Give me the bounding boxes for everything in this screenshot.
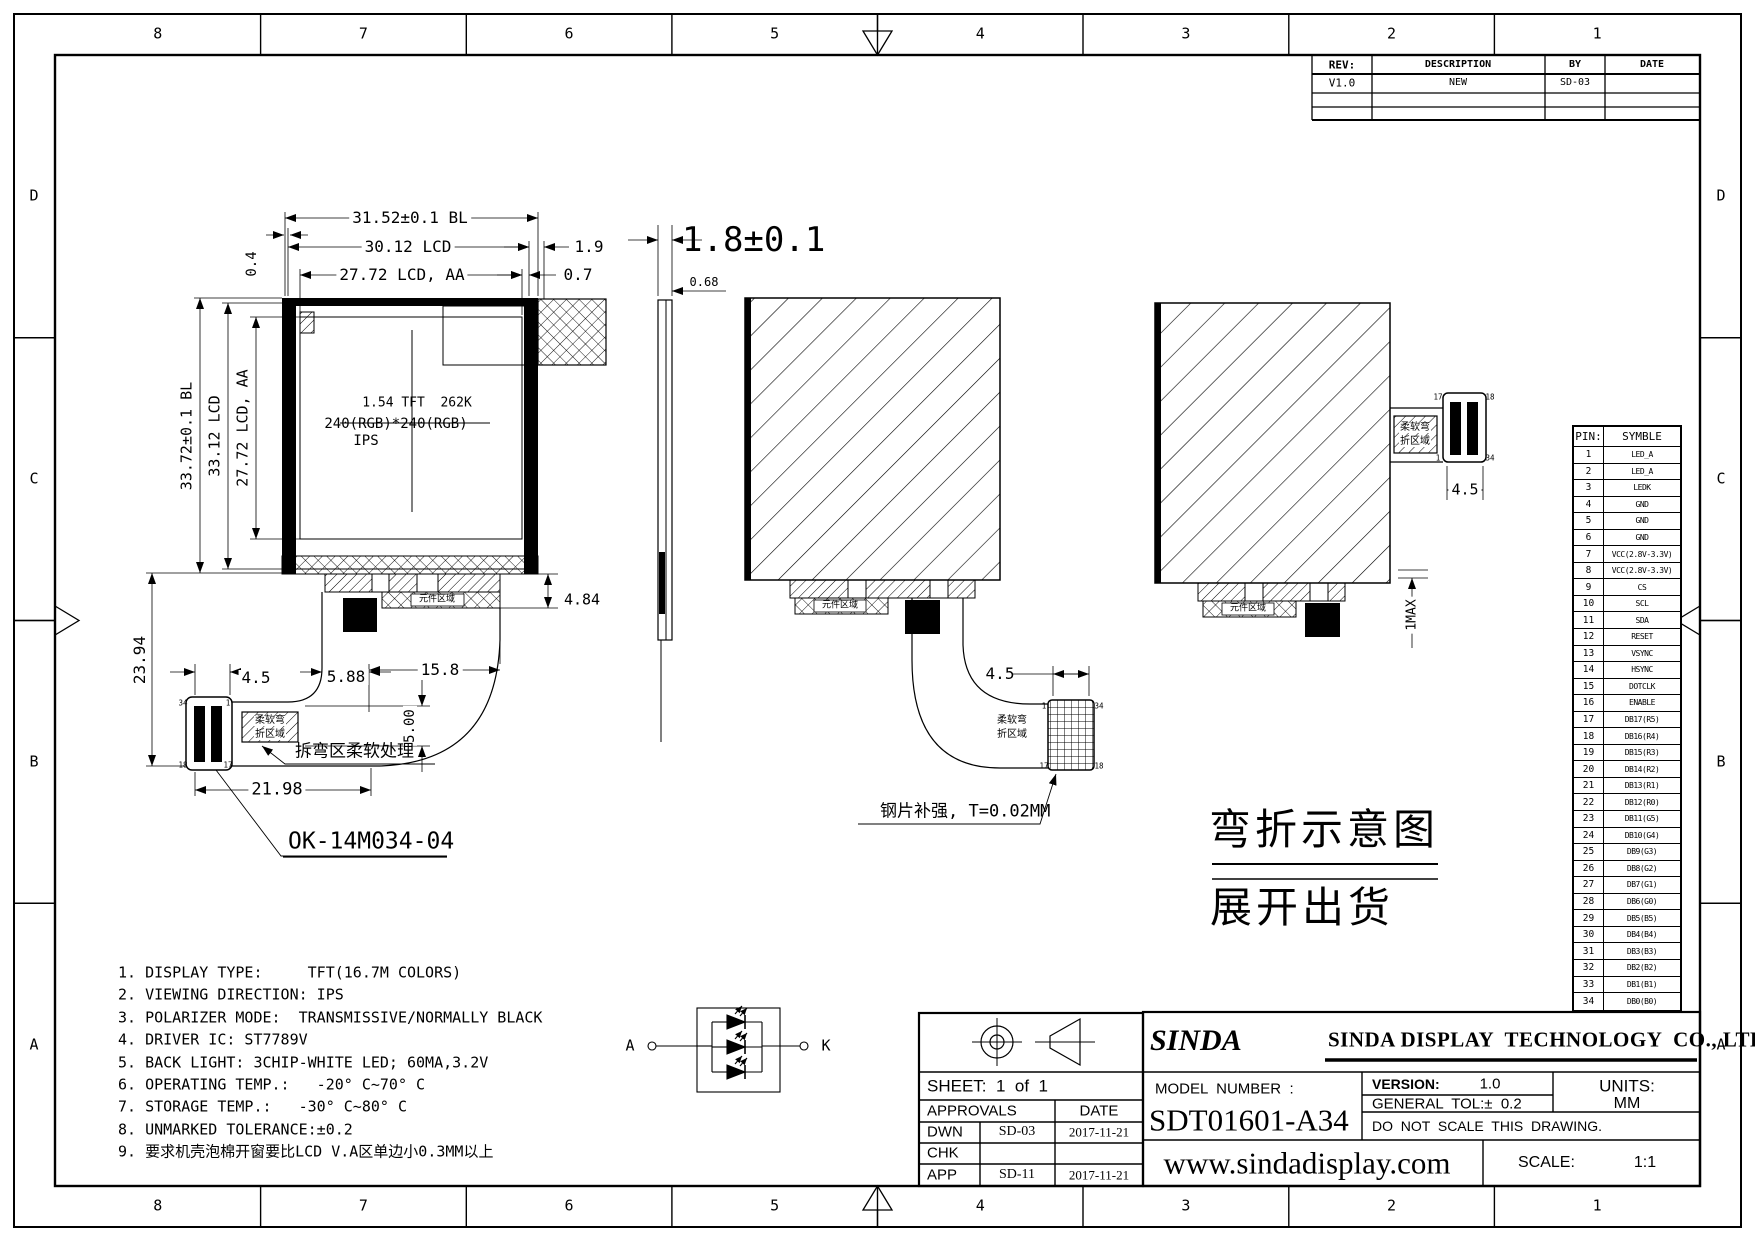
- pin-table-row: 9CS: [1574, 579, 1680, 596]
- pin-table-row: 29DB5(B5): [1574, 910, 1680, 927]
- mid-flex-zone-label-2: 折区域: [996, 730, 1028, 740]
- pin-table-row: 21DB13(R1): [1574, 778, 1680, 795]
- drawing-sheet: 8877665544332211DDCCBBAA 1. DISPLAY TYPE…: [0, 0, 1755, 1241]
- pin-symbol: VSYNC: [1604, 646, 1680, 662]
- pin-table-body: 1LED_A2LED_A3LEDK4GND5GND6GND7VCC(2.8V-3…: [1574, 447, 1680, 1010]
- pin-table-header: PIN: SYMBLE: [1574, 427, 1680, 447]
- zone-column-label-top: 8: [153, 27, 162, 42]
- pin-number: 17: [1574, 712, 1604, 728]
- pin-table-row: 31DB3(B3): [1574, 943, 1680, 960]
- dim-tail-width: 21.98: [248, 782, 305, 799]
- pin-table-row: 24DB10(G4): [1574, 828, 1680, 845]
- pin-number: 13: [1574, 646, 1604, 662]
- scale-label: SCALE:: [1518, 1155, 1575, 1171]
- pin-number: 23: [1574, 811, 1604, 827]
- pin-symbol: DB6(G0): [1604, 894, 1680, 910]
- steel-reinforce-note: 钢片补强, T=0.02MM: [880, 804, 1050, 821]
- pin-number: 9: [1574, 579, 1604, 595]
- note-line: 9. 要求机壳泡棉开窗要比LCD V.A区单边小0.3MM以上: [118, 1145, 493, 1160]
- pin-number: 10: [1574, 596, 1604, 612]
- note-line: 4. DRIVER IC: ST7789V: [118, 1033, 308, 1048]
- dim-edge-right-aa: 0.7: [564, 267, 593, 283]
- website: www.sindadisplay.com: [1164, 1148, 1451, 1179]
- pin-table-row: 11SDA: [1574, 612, 1680, 629]
- pin-table-row: 6GND: [1574, 530, 1680, 547]
- component-area-label: 元件区域: [419, 596, 455, 605]
- pin-table-row: 12RESET: [1574, 629, 1680, 646]
- pin-number: 16: [1574, 695, 1604, 711]
- approvals-role-chk: CHK: [927, 1146, 959, 1161]
- dim-height-aa: 27.72 LCD, AA: [236, 366, 251, 489]
- pin-table-row: 14HSYNC: [1574, 662, 1680, 679]
- pin-symbol: DB13(R1): [1604, 778, 1680, 794]
- caption-unfold-ship: 展开出货: [1210, 887, 1394, 929]
- pin-symbol: VCC(2.8V-3.3V): [1604, 546, 1680, 562]
- caption-fold-view: 弯折示意图: [1209, 809, 1439, 851]
- pin-number: 33: [1574, 977, 1604, 993]
- pin-table-row: 7VCC(2.8V-3.3V): [1574, 546, 1680, 563]
- rev-description: NEW: [1449, 78, 1467, 88]
- dim-width-lcd: 30.12 LCD: [362, 239, 455, 255]
- zone-column-label-bottom: 1: [1593, 1199, 1602, 1214]
- zone-column-label-top: 1: [1593, 27, 1602, 42]
- dim-ribbon-width: 5.00: [403, 706, 417, 746]
- display-spec-line1: 1.54 TFT 262K: [362, 397, 472, 410]
- mid-pin-num-tr: 34: [1094, 702, 1103, 710]
- version-label: VERSION:: [1372, 1077, 1440, 1091]
- approvals-date-dwn: 2017-11-21: [1069, 1126, 1129, 1139]
- pin-number: 21: [1574, 778, 1604, 794]
- dim-seg-b: 15.8: [418, 662, 463, 678]
- pin-number: 26: [1574, 861, 1604, 877]
- pin-table-row: 25DB9(G3): [1574, 844, 1680, 861]
- dim-height-bl: 33.72±0.1 BL: [180, 379, 195, 493]
- mid-pin-num-tl: 1: [1042, 702, 1047, 710]
- zone-column-label-bottom: 2: [1387, 1199, 1396, 1214]
- note-line: 5. BACK LIGHT: 3CHIP-WHITE LED; 60MA,3.2…: [118, 1055, 488, 1070]
- pin-number: 22: [1574, 794, 1604, 810]
- pin-symbol: VCC(2.8V-3.3V): [1604, 563, 1680, 579]
- zone-column-label-top: 7: [359, 27, 368, 42]
- pin-number: 18: [1574, 728, 1604, 744]
- pin-number: 25: [1574, 844, 1604, 860]
- mid-pin-num-br: 18: [1094, 762, 1103, 770]
- pin-number: 27: [1574, 877, 1604, 893]
- pin-number: 30: [1574, 927, 1604, 943]
- pin-table-row: 13VSYNC: [1574, 646, 1680, 663]
- pin-number: 4: [1574, 497, 1604, 513]
- pin-num-br: 17: [223, 761, 232, 769]
- pin-symbol: DB14(R2): [1604, 761, 1680, 777]
- zone-column-label-bottom: 8: [153, 1199, 162, 1214]
- dim-right-conn-width: 4.5: [1448, 483, 1481, 498]
- zone-column-label-bottom: 6: [565, 1199, 574, 1214]
- pin-number: 2: [1574, 464, 1604, 480]
- pin-table-row: 16ENABLE: [1574, 695, 1680, 712]
- pin-table-row: 23DB11(G5): [1574, 811, 1680, 828]
- pin-symbol: HSYNC: [1604, 662, 1680, 678]
- right-pin-num-tl: 17: [1433, 393, 1442, 401]
- approvals-by-dwn: SD-03: [999, 1125, 1036, 1139]
- dim-edge-right-lcd: 1.9: [575, 239, 604, 255]
- pin-symbol: DB2(B2): [1604, 960, 1680, 976]
- pin-symbol: DB4(B4): [1604, 927, 1680, 943]
- right-flex-zone-label-1: 柔软弯: [1399, 423, 1431, 433]
- pin-number: 32: [1574, 960, 1604, 976]
- pin-table-row: 26DB8(G2): [1574, 861, 1680, 878]
- led-anode-label: A: [625, 1039, 634, 1054]
- pin-symbol: DB16(R4): [1604, 728, 1680, 744]
- approvals-header: APPROVALS: [927, 1104, 1017, 1119]
- zone-column-label-top: 5: [770, 27, 779, 42]
- dim-seg-a: 5.88: [324, 669, 369, 685]
- zone-row-label-left: C: [29, 472, 38, 487]
- display-spec-line3: IPS: [353, 434, 378, 448]
- zone-column-label-top: 6: [565, 27, 574, 42]
- pin-symbol: GND: [1604, 497, 1680, 513]
- company-name: SINDA DISPLAY TECHNOLOGY CO., LTD.: [1328, 1030, 1755, 1051]
- mid-flex-zone-label-1: 柔软弯: [996, 716, 1028, 726]
- note-line: 8. UNMARKED TOLERANCE:±0.2: [118, 1122, 353, 1137]
- pin-number: 7: [1574, 546, 1604, 562]
- note-line: 7. STORAGE TEMP.: -30° C~80° C: [118, 1100, 407, 1115]
- pin-table: PIN: SYMBLE 1LED_A2LED_A3LEDK4GND5GND6GN…: [1572, 425, 1682, 1012]
- pin-num-tl: 34: [178, 699, 187, 707]
- pin-number: 20: [1574, 761, 1604, 777]
- pin-table-col-symbol: SYMBLE: [1604, 427, 1680, 446]
- model-number-label: MODEL NUMBER :: [1155, 1082, 1294, 1097]
- pin-number: 8: [1574, 563, 1604, 579]
- pin-number: 1: [1574, 447, 1604, 463]
- pin-symbol: GND: [1604, 513, 1680, 529]
- pin-symbol: DB11(G5): [1604, 811, 1680, 827]
- zone-row-label-right: C: [1716, 472, 1725, 487]
- general-tolerance: GENERAL TOL:± 0.2: [1372, 1097, 1522, 1112]
- right-pin-num-bl: 1: [1436, 454, 1441, 462]
- pin-number: 14: [1574, 662, 1604, 678]
- pin-number: 24: [1574, 828, 1604, 844]
- dim-strip-height: 4.84: [564, 593, 600, 608]
- no-scale-note: DO NOT SCALE THIS DRAWING.: [1372, 1119, 1602, 1133]
- pin-symbol: DB1(B1): [1604, 977, 1680, 993]
- pin-symbol: LED_A: [1604, 464, 1680, 480]
- pin-number: 15: [1574, 679, 1604, 695]
- flex-zone-label-1: 柔软弯: [254, 716, 286, 726]
- pin-table-row: 1LED_A: [1574, 447, 1680, 464]
- dim-mid-conn-width: 4.5: [986, 666, 1015, 682]
- pin-table-row: 18DB16(R4): [1574, 728, 1680, 745]
- rev-by: SD-03: [1560, 78, 1590, 88]
- description-col-header: DESCRIPTION: [1425, 60, 1491, 70]
- model-number: SDT01601-A34: [1149, 1105, 1349, 1136]
- pin-symbol: DB9(G3): [1604, 844, 1680, 860]
- pin-number: 29: [1574, 910, 1604, 926]
- pin-table-row: 5GND: [1574, 513, 1680, 530]
- date-col-header: DATE: [1640, 60, 1664, 70]
- pin-number: 5: [1574, 513, 1604, 529]
- right-pin-num-tr: 18: [1485, 393, 1494, 401]
- dim-edge-left: 0.4: [245, 251, 259, 276]
- zone-column-label-bottom: 4: [976, 1199, 985, 1214]
- right-flex-zone-label-2: 折区域: [1399, 437, 1431, 447]
- approvals-date-header: DATE: [1080, 1104, 1119, 1119]
- rev-col-header: REV:: [1329, 60, 1356, 71]
- pin-table-row: 20DB14(R2): [1574, 761, 1680, 778]
- approvals-role-dwn: DWN: [927, 1125, 963, 1140]
- pin-table-row: 3LEDK: [1574, 480, 1680, 497]
- dim-offset: 0.68: [690, 276, 719, 288]
- zone-column-label-bottom: 7: [359, 1199, 368, 1214]
- approvals-role-app: APP: [927, 1168, 957, 1183]
- pin-symbol: LEDK: [1604, 480, 1680, 496]
- pin-symbol: DB15(R3): [1604, 745, 1680, 761]
- pin-symbol: DB0(B0): [1604, 993, 1680, 1010]
- sheet-label: SHEET: 1 of 1: [927, 1078, 1048, 1095]
- pin-symbol: DB10(G4): [1604, 828, 1680, 844]
- dim-tail-height: 23.94: [132, 633, 148, 687]
- dim-height-lcd: 33.12 LCD: [208, 392, 223, 479]
- pin-symbol: GND: [1604, 530, 1680, 546]
- pin-number: 3: [1574, 480, 1604, 496]
- zone-row-label-right: D: [1716, 189, 1725, 204]
- company-logo: SINDA: [1150, 1026, 1242, 1056]
- scale-value: 1:1: [1634, 1155, 1656, 1171]
- pin-number: 34: [1574, 993, 1604, 1010]
- right-component-area-label: 元件区域: [1230, 605, 1266, 614]
- pin-num-tr: 1: [226, 699, 231, 707]
- led-cathode-label: K: [821, 1039, 830, 1054]
- approvals-date-app: 2017-11-21: [1069, 1169, 1129, 1182]
- pin-symbol: LED_A: [1604, 447, 1680, 463]
- pin-symbol: CS: [1604, 579, 1680, 595]
- pin-table-row: 15DOTCLK: [1574, 679, 1680, 696]
- by-col-header: BY: [1569, 60, 1581, 70]
- zone-row-label-left: D: [29, 189, 38, 204]
- pin-symbol: DB5(B5): [1604, 910, 1680, 926]
- note-line: 1. DISPLAY TYPE: TFT(16.7M COLORS): [118, 966, 461, 981]
- pin-symbol: DB17(R5): [1604, 712, 1680, 728]
- zone-column-label-top: 3: [1181, 27, 1190, 42]
- pin-symbol: DB3(B3): [1604, 943, 1680, 959]
- zone-column-label-bottom: 5: [770, 1199, 779, 1214]
- version-value: 1.0: [1480, 1077, 1501, 1092]
- pin-number: 28: [1574, 894, 1604, 910]
- pin-num-bl: 18: [178, 761, 187, 769]
- pin-table-row: 4GND: [1574, 497, 1680, 514]
- pin-table-row: 17DB17(R5): [1574, 712, 1680, 729]
- part-number: OK-14M034-04: [288, 831, 454, 854]
- pin-number: 6: [1574, 530, 1604, 546]
- display-spec-line2: 240(RGB)*240(RGB): [324, 417, 467, 431]
- rev-value: V1.0: [1329, 78, 1356, 89]
- mid-component-area-label: 元件区域: [822, 602, 858, 611]
- pin-table-row: 32DB2(B2): [1574, 960, 1680, 977]
- mid-pin-num-bl: 17: [1039, 762, 1048, 770]
- units-label: UNITS:: [1599, 1078, 1655, 1095]
- pin-table-row: 19DB15(R3): [1574, 745, 1680, 762]
- pin-table-row: 30DB4(B4): [1574, 927, 1680, 944]
- pin-symbol: ENABLE: [1604, 695, 1680, 711]
- pin-symbol: DOTCLK: [1604, 679, 1680, 695]
- zone-column-label-bottom: 3: [1181, 1199, 1190, 1214]
- pin-symbol: DB7(G1): [1604, 877, 1680, 893]
- zone-row-label-left: B: [29, 754, 38, 769]
- pin-table-row: 8VCC(2.8V-3.3V): [1574, 563, 1680, 580]
- note-line: 2. VIEWING DIRECTION: IPS: [118, 988, 344, 1003]
- pin-table-row: 10SCL: [1574, 596, 1680, 613]
- pin-table-col-pin: PIN:: [1574, 427, 1604, 446]
- pin-number: 19: [1574, 745, 1604, 761]
- units-value: MM: [1614, 1096, 1641, 1112]
- approvals-by-app: SD-11: [999, 1168, 1035, 1182]
- pin-number: 11: [1574, 612, 1604, 628]
- note-line: 3. POLARIZER MODE: TRANSMISSIVE/NORMALLY…: [118, 1010, 542, 1025]
- pin-table-row: 27DB7(G1): [1574, 877, 1680, 894]
- dim-width-aa: 27.72 LCD, AA: [336, 267, 467, 283]
- zone-row-label-left: A: [29, 1037, 38, 1052]
- dim-max-fold: 1MAX: [1406, 596, 1419, 633]
- pin-symbol: DB8(G2): [1604, 861, 1680, 877]
- pin-symbol: SCL: [1604, 596, 1680, 612]
- dim-width-bl: 31.52±0.1 BL: [349, 210, 471, 226]
- pin-table-row: 2LED_A: [1574, 464, 1680, 481]
- pin-table-row: 28DB6(G0): [1574, 894, 1680, 911]
- zone-row-label-right: B: [1716, 754, 1725, 769]
- pin-number: 31: [1574, 943, 1604, 959]
- zone-column-label-top: 4: [976, 27, 985, 42]
- pin-table-row: 22DB12(R0): [1574, 794, 1680, 811]
- pin-table-row: 33DB1(B1): [1574, 977, 1680, 994]
- flex-zone-label-2: 折区域: [254, 730, 286, 740]
- pin-symbol: RESET: [1604, 629, 1680, 645]
- bend-process-note: 拆弯区柔软处理: [295, 744, 414, 761]
- pin-symbol: DB12(R0): [1604, 794, 1680, 810]
- zone-column-label-top: 2: [1387, 27, 1396, 42]
- pin-number: 12: [1574, 629, 1604, 645]
- pin-table-row: 34DB0(B0): [1574, 993, 1680, 1010]
- note-line: 6. OPERATING TEMP.: -20° C~70° C: [118, 1078, 425, 1093]
- dim-conn-width: 4.5: [239, 670, 274, 686]
- pin-symbol: SDA: [1604, 612, 1680, 628]
- dim-thickness: 1.8±0.1: [682, 223, 825, 257]
- right-pin-num-br: 34: [1485, 454, 1494, 462]
